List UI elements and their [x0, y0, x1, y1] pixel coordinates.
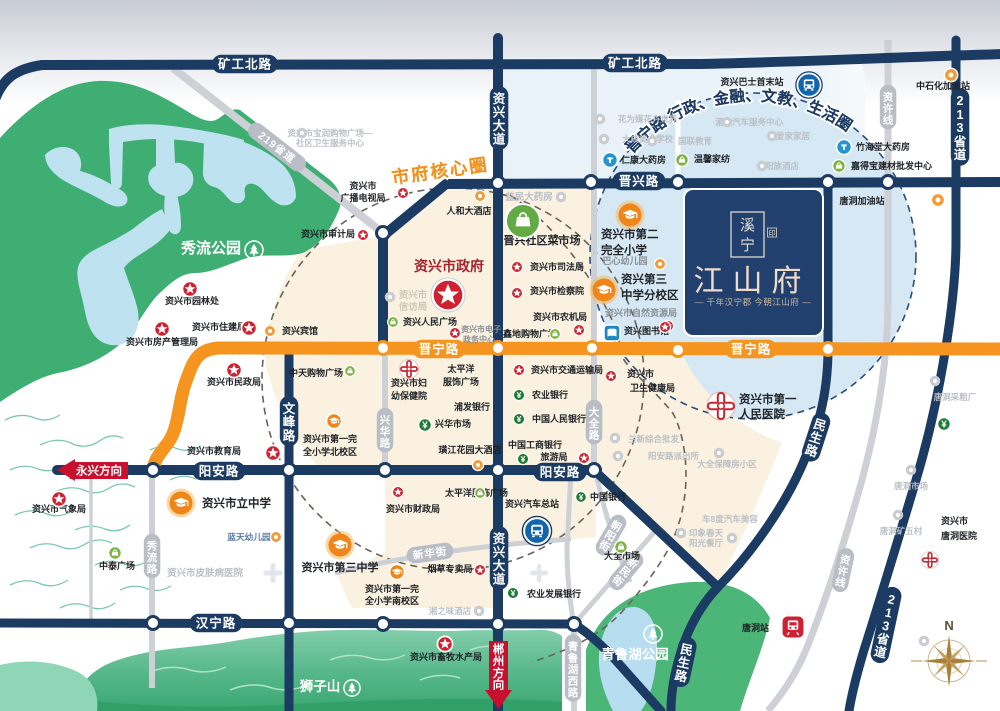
svg-text:幼保健院: 幼保健院	[391, 390, 427, 401]
svg-text:资兴市自然资源局: 资兴市自然资源局	[605, 307, 677, 318]
svg-text:资兴市交通运输局: 资兴市交通运输局	[531, 364, 603, 375]
svg-text:中国银行: 中国银行	[590, 491, 626, 502]
svg-text:路: 路	[380, 436, 391, 449]
svg-text:资兴市住建局: 资兴市住建局	[192, 321, 246, 332]
svg-text:资兴市: 资兴市	[349, 180, 376, 191]
svg-text:江山府: 江山府	[694, 265, 811, 298]
svg-text:全小学南校区: 全小学南校区	[364, 595, 419, 606]
svg-text:峰: 峰	[283, 414, 296, 429]
svg-text:鲁: 鲁	[567, 651, 579, 664]
svg-text:资兴市皮肤病医院: 资兴市皮肤病医院	[167, 567, 244, 579]
svg-text:人民医院: 人民医院	[739, 407, 785, 421]
svg-text:爱家家居: 爱家家居	[776, 131, 811, 141]
svg-text:中国工商银行: 中国工商银行	[508, 439, 562, 450]
svg-text:资兴市: 资兴市	[941, 515, 968, 526]
svg-text:郴: 郴	[493, 642, 505, 656]
svg-text:狮子山: 狮子山	[299, 679, 341, 694]
svg-text:唐洞加油站: 唐洞加油站	[839, 195, 884, 206]
svg-text:资兴市: 资兴市	[627, 368, 654, 379]
svg-text:卫生健康局: 卫生健康局	[630, 382, 675, 393]
svg-text:兴: 兴	[493, 105, 506, 120]
svg-text:兴华市场: 兴华市场	[435, 418, 471, 429]
svg-text:中石化加油站: 中石化加油站	[916, 80, 970, 91]
svg-text:中国人民银行: 中国人民银行	[532, 413, 586, 424]
svg-text:大: 大	[493, 558, 506, 573]
svg-text:嘉得宝建材批发中心: 嘉得宝建材批发中心	[850, 160, 932, 171]
svg-text:华: 华	[380, 425, 391, 438]
svg-text:资兴市立中学: 资兴市立中学	[202, 496, 271, 510]
svg-text:西: 西	[568, 675, 579, 687]
svg-text:矿工北路: 矿工北路	[608, 56, 662, 71]
svg-text:资兴市财政局: 资兴市财政局	[386, 503, 440, 514]
svg-text:湘之味酒店: 湘之味酒店	[429, 606, 472, 616]
svg-text:N: N	[944, 618, 953, 633]
svg-text:人和大酒店: 人和大酒店	[445, 205, 491, 216]
svg-text:矿工北路: 矿工北路	[218, 57, 272, 72]
svg-text:资兴市电子: 资兴市电子	[461, 324, 501, 334]
svg-text:浦发银行: 浦发银行	[454, 401, 490, 412]
svg-text:秀流公园: 秀流公园	[180, 239, 241, 257]
svg-text:3: 3	[957, 121, 964, 135]
svg-text:大: 大	[493, 118, 506, 133]
svg-text:大: 大	[589, 405, 600, 418]
svg-text:许: 许	[883, 102, 894, 115]
svg-text:中天购物广场: 中天购物广场	[289, 367, 343, 378]
svg-text:溪: 溪	[740, 217, 755, 234]
svg-text:唐洞市场: 唐洞市场	[894, 481, 929, 491]
svg-text:鑫地购物广场: 鑫地购物广场	[502, 328, 557, 339]
svg-text:竹海堂大药房: 竹海堂大药房	[855, 141, 910, 152]
svg-text:资兴市农机局: 资兴市农机局	[533, 311, 587, 322]
svg-text:唐洞医院: 唐洞医院	[941, 530, 977, 541]
svg-text:花为媒花卉世界: 花为媒花卉世界	[618, 114, 678, 124]
svg-text:永兴方向: 永兴方向	[75, 464, 122, 478]
svg-text:烟草专卖局: 烟草专卖局	[427, 563, 472, 574]
svg-text:农业银行: 农业银行	[531, 389, 568, 400]
svg-text:阳安路: 阳安路	[540, 465, 581, 480]
svg-text:道: 道	[954, 147, 967, 162]
svg-text:资兴汽车总站: 资兴汽车总站	[505, 498, 559, 509]
svg-text:青: 青	[568, 640, 579, 653]
svg-text:资兴市教育局: 资兴市教育局	[187, 445, 241, 456]
svg-text:车8度汽车美容: 车8度汽车美容	[702, 514, 758, 524]
svg-text:资兴市司法局: 资兴市司法局	[530, 261, 584, 272]
svg-text:省: 省	[953, 134, 967, 149]
svg-text:2: 2	[957, 94, 964, 108]
svg-text:资兴人民广场: 资兴人民广场	[403, 316, 457, 327]
svg-text:资兴市政府: 资兴市政府	[414, 258, 484, 274]
svg-text:全小学北校区: 全小学北校区	[302, 446, 357, 457]
svg-text:资兴市第三中学: 资兴市第三中学	[302, 560, 379, 574]
svg-text:中泰广场: 中泰广场	[99, 560, 135, 571]
svg-text:资兴市第一: 资兴市第一	[739, 392, 797, 406]
svg-text:兰新综合批发: 兰新综合批发	[628, 434, 680, 444]
svg-text:道: 道	[493, 132, 506, 147]
svg-text:资兴市第一完: 资兴市第一完	[303, 433, 357, 444]
svg-text:蓝天幼儿园: 蓝天幼儿园	[227, 531, 271, 542]
svg-text:线: 线	[883, 113, 894, 126]
svg-text:璜江花园大酒店: 璜江花园大酒店	[438, 444, 501, 455]
svg-text:晋兴路: 晋兴路	[619, 174, 660, 189]
svg-text:兴: 兴	[380, 413, 391, 426]
svg-text:湖: 湖	[568, 663, 579, 676]
svg-text:路: 路	[283, 428, 296, 443]
svg-text:益民大药房: 益民大药房	[505, 191, 553, 203]
svg-text:资: 资	[883, 90, 894, 103]
svg-text:旅游局: 旅游局	[540, 451, 567, 462]
svg-text:仁康大药房: 仁康大药房	[621, 154, 666, 165]
svg-text:阳安路: 阳安路	[199, 464, 240, 479]
svg-text:秀: 秀	[146, 539, 158, 552]
svg-text:国联教育: 国联教育	[678, 136, 713, 146]
svg-text:唐洞站: 唐洞站	[742, 622, 769, 633]
svg-text:阳族酒店: 阳族酒店	[765, 161, 800, 171]
svg-text:唐洞采粗厂: 唐洞采粗厂	[934, 392, 977, 402]
svg-text:印: 印	[769, 230, 776, 238]
svg-text:资兴市第一完: 资兴市第一完	[365, 583, 419, 594]
svg-text:路: 路	[589, 428, 600, 441]
svg-text:— 千年汉宁郡 今朝江山府 —: — 千年汉宁郡 今朝江山府 —	[695, 297, 812, 307]
svg-text:资兴市审计局: 资兴市审计局	[301, 228, 355, 239]
svg-text:晋宁路: 晋宁路	[731, 342, 772, 357]
svg-text:唐洞矿五村: 唐洞矿五村	[880, 526, 923, 536]
svg-text:阳安路派出所: 阳安路派出所	[648, 451, 700, 461]
svg-text:资兴市检察院: 资兴市检察院	[530, 285, 584, 296]
svg-text:方: 方	[493, 666, 505, 680]
svg-text:资兴第三: 资兴第三	[621, 272, 667, 286]
svg-text:大全保障房小区: 大全保障房小区	[697, 459, 757, 469]
svg-text:温馨家纺: 温馨家纺	[694, 153, 730, 164]
svg-text:向: 向	[493, 678, 505, 692]
svg-text:资兴巴士首末站: 资兴巴士首末站	[720, 76, 783, 87]
svg-text:印象春天: 印象春天	[689, 528, 724, 538]
svg-text:服饰广场: 服饰广场	[443, 376, 479, 387]
svg-text:州: 州	[492, 655, 505, 668]
svg-text:晋宁路: 晋宁路	[419, 342, 460, 357]
svg-text:资: 资	[493, 91, 506, 106]
svg-text:太平洋: 太平洋	[446, 363, 474, 374]
svg-text:资兴市: 资兴市	[399, 289, 428, 301]
svg-text:宁: 宁	[740, 237, 755, 254]
svg-text:中学分校区: 中学分校区	[621, 288, 679, 302]
svg-text:资兴市畜牧水产局: 资兴市畜牧水产局	[410, 651, 482, 662]
svg-text:巴心幼儿园: 巴心幼儿园	[602, 255, 647, 266]
svg-text:汉宁路: 汉宁路	[196, 616, 237, 631]
svg-text:广播电视局: 广播电视局	[340, 192, 385, 203]
svg-text:农业发展银行: 农业发展银行	[526, 588, 581, 599]
svg-text:文: 文	[283, 401, 296, 416]
svg-text:兴: 兴	[493, 545, 506, 560]
svg-text:政务中心: 政务中心	[463, 334, 495, 344]
svg-text:1: 1	[957, 108, 964, 122]
svg-text:全: 全	[588, 417, 600, 430]
svg-text:路: 路	[147, 562, 158, 575]
svg-text:资兴市房产管理局: 资兴市房产管理局	[126, 336, 198, 347]
svg-text:路: 路	[568, 686, 579, 699]
svg-text:青鲁湖公园: 青鲁湖公园	[601, 646, 669, 662]
svg-text:道: 道	[493, 572, 506, 587]
svg-text:流: 流	[147, 551, 158, 564]
svg-text:完全小学: 完全小学	[601, 243, 647, 257]
svg-text:资: 资	[493, 531, 506, 546]
svg-text:信访局: 信访局	[399, 301, 428, 313]
svg-text:阳光餐厅: 阳光餐厅	[689, 538, 724, 548]
svg-text:社区卫生服务中心: 社区卫生服务中心	[295, 138, 365, 148]
svg-text:资兴宾馆: 资兴宾馆	[282, 325, 318, 336]
